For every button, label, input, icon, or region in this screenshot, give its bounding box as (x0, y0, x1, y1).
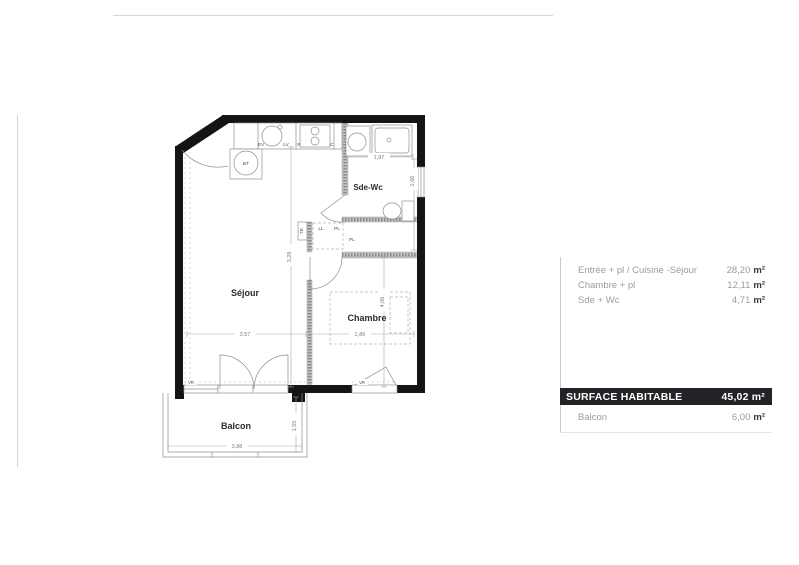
surface-rows: Entrée + pl / Cuisine -Séjour 28,20m² Ch… (561, 263, 772, 308)
entry-door-swing (182, 150, 228, 167)
toilet-tank (402, 201, 414, 221)
label-shutter-left: VR (188, 380, 194, 385)
fixture-labels: BT EV LV R C TE LL PL PL VR VR (186, 142, 368, 385)
balcony-unit: m² (753, 412, 765, 423)
chambre-door-swing (310, 257, 342, 289)
room-label-chambre: Chambre (347, 313, 386, 323)
openings (182, 150, 424, 393)
label-water-heater: BT (243, 161, 249, 167)
dim-balcon-depth: 1,55 (292, 421, 298, 432)
dim-entree-height: 3,28 (287, 252, 293, 263)
surface-row-value: 12,11m² (727, 278, 765, 293)
french-door-right-swing (254, 355, 288, 389)
surface-habitable-label: SURFACE HABITABLE (566, 391, 682, 403)
dim-sde-height: 2,66 (410, 176, 416, 187)
label-cooktop: C (330, 142, 334, 148)
dim-sde-width: 1,97 (374, 155, 385, 161)
chambre-window (352, 385, 397, 393)
label-closet: PL (334, 226, 340, 232)
surface-row-label: Chambre + pl (578, 278, 635, 293)
label-shutter-right: VR (359, 380, 365, 385)
surface-row-entree-cuisine-sejour: Entrée + pl / Cuisine -Séjour 28,20m² (561, 263, 772, 278)
kitchen (230, 123, 342, 179)
toilet-icon (383, 203, 401, 219)
french-door-left-swing (220, 355, 254, 389)
surface-unit: m² (753, 265, 765, 276)
room-label-sde-wc: Sde-Wc (353, 183, 383, 192)
surface-row-label: Sde + Wc (578, 293, 619, 308)
label-closet-hall: PL (349, 237, 355, 243)
surface-panel: Entrée + pl / Cuisine -Séjour 28,20m² Ch… (560, 257, 772, 433)
surface-habitable-bar: SURFACE HABITABLE 45,02 m² (560, 388, 772, 405)
dim-balcon-width: 3,88 (232, 444, 243, 450)
room-label-sejour: Séjour (231, 288, 260, 298)
surface-row-label: Entrée + pl / Cuisine -Séjour (578, 263, 697, 278)
label-fridge: R (297, 142, 301, 148)
surface-row-sde-wc: Sde + Wc 4,71m² (561, 293, 772, 308)
shower-icon (372, 125, 412, 156)
page: 1,97 2,66 3,28 3,57 2,86 4,06 3,88 1,55 … (0, 0, 799, 565)
bathroom (346, 125, 414, 221)
surface-row-value: 4,71m² (732, 293, 765, 308)
surface-row-value: 28,20m² (727, 263, 765, 278)
dimension-labels: 1,97 2,66 3,28 3,57 2,86 4,06 3,88 1,55 (226, 153, 418, 450)
dim-chambre-width: 2,86 (355, 332, 366, 338)
balcony-value: 6,00m² (732, 410, 765, 426)
label-washing-machine: LL (318, 226, 324, 232)
label-sink: EV (258, 142, 265, 148)
bed-pillow (390, 297, 408, 333)
label-dishwasher: LV (283, 142, 289, 148)
surface-row-chambre: Chambre + pl 12,11m² (561, 278, 772, 293)
dim-sejour-width: 3,57 (240, 332, 251, 338)
surface-unit: m² (753, 280, 765, 291)
surface-habitable-value: 45,02 m² (721, 391, 765, 403)
balcony-row: Balcon 6,00m² (561, 410, 772, 426)
dim-chambre-height: 4,06 (380, 297, 386, 308)
entry-chamfer-wall (179, 119, 226, 150)
room-label-balcon: Balcon (221, 421, 251, 431)
sde-door-swing (321, 195, 345, 222)
interior-partitions (307, 123, 418, 386)
balcony-label: Balcon (578, 410, 607, 426)
label-electrical-panel: TE (299, 228, 305, 234)
surface-unit: m² (753, 295, 765, 306)
